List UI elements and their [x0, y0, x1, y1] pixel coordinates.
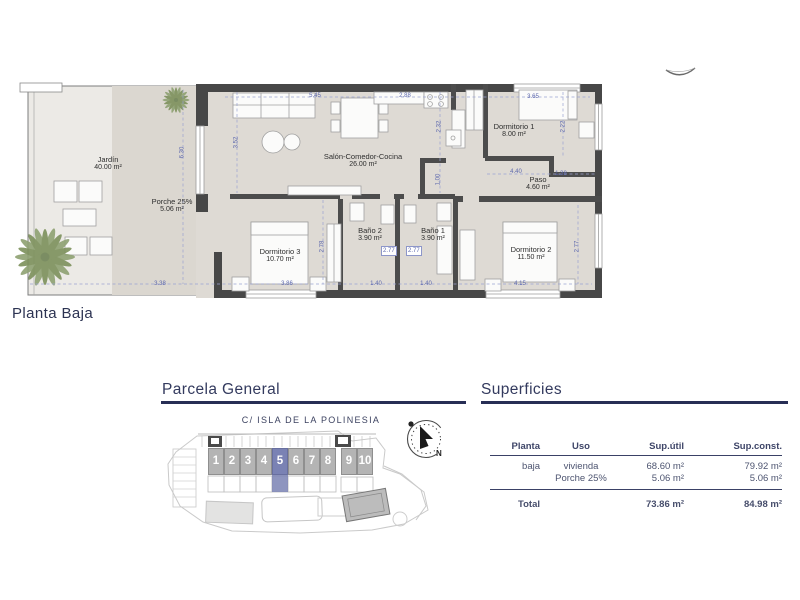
stove	[424, 92, 448, 108]
dimension-boxed: 2.77	[381, 246, 397, 256]
parcela-heading: Parcela General	[162, 381, 280, 399]
compass-icon: N	[408, 421, 445, 459]
table-total-row: Total 73.86 m² 84.98 m²	[490, 494, 782, 510]
dimension: 3.65	[518, 93, 548, 102]
dimension: 3.52	[233, 128, 242, 158]
nightstand	[485, 279, 501, 291]
bathroom-fixture	[404, 205, 416, 223]
room-label-salon: Salón-Comedor-Cocina26.00 m²	[298, 152, 428, 169]
dimension-boxed: 2.77	[406, 246, 422, 256]
north-label: N	[436, 449, 442, 458]
decorative-arc	[666, 68, 695, 75]
porche-area	[112, 86, 196, 295]
dimension: 3.86	[272, 280, 302, 289]
dimension: 1.00	[435, 165, 444, 195]
dimension: 2.77	[574, 232, 583, 262]
table-rule	[490, 489, 782, 490]
garden-chair	[54, 181, 77, 202]
fence-post	[20, 83, 62, 92]
dimension: 1.38	[546, 170, 576, 179]
dimension: 2.32	[436, 112, 445, 142]
cell-uso: Porche 25%	[540, 473, 622, 484]
plot-4: 4	[256, 448, 272, 475]
dimension: 5.45	[300, 92, 330, 101]
cell-util: 68.60 m²	[622, 461, 684, 472]
dimension: 2.78	[319, 232, 328, 262]
dining-table	[341, 98, 378, 138]
bathroom-fixture	[381, 205, 394, 224]
chair	[379, 120, 388, 132]
cell-util: 5.06 m²	[622, 473, 684, 484]
nightstand	[559, 279, 575, 291]
dimension: 1.40	[411, 280, 441, 289]
plot-5-patio	[272, 475, 288, 492]
table-rule	[490, 455, 782, 456]
cell-const: 5.06 m²	[684, 473, 782, 484]
plot-3: 3	[240, 448, 256, 475]
plot-2: 2	[224, 448, 240, 475]
sideboard	[288, 186, 361, 195]
street-label: C/ ISLA DE LA POLINESIA	[198, 415, 424, 425]
dimension: 4.40	[501, 168, 531, 177]
plot-7: 7	[304, 448, 320, 475]
coffee-table	[262, 131, 284, 153]
nightstand	[579, 122, 594, 138]
room-label-porche: Porche 25%5.06 m²	[107, 197, 237, 214]
room-label-jardin: Jardín40.00 m²	[43, 155, 173, 172]
superficies-heading: Superficies	[481, 381, 562, 399]
patio-row	[208, 476, 373, 492]
floor-label: Planta Baja	[12, 305, 93, 322]
dimension: 1.40	[361, 280, 391, 289]
bathroom-fixture	[350, 203, 364, 221]
dimension: 4.15	[505, 280, 535, 289]
room-label-bano-1: Baño 13.90 m²	[368, 226, 498, 243]
total-const: 84.98 m²	[684, 499, 782, 510]
parcela-underline	[161, 401, 466, 404]
plot-6: 6	[288, 448, 304, 475]
table-header-row: Planta Uso Sup.útil Sup.const.	[490, 437, 782, 452]
site-plan	[168, 431, 428, 533]
floor-plan-drawing: N	[0, 0, 800, 600]
plot-5-highlighted: 5	[272, 448, 288, 475]
room-label-paso: Paso4.60 m²	[473, 175, 603, 192]
col-sup-const: Sup.const.	[684, 441, 782, 452]
plot-9: 9	[341, 448, 357, 475]
bathroom-fixture	[437, 203, 451, 221]
garden-table	[63, 209, 96, 226]
cell-uso: vivienda	[540, 461, 622, 472]
col-uso: Uso	[540, 441, 622, 452]
total-label: Total	[490, 499, 540, 510]
table-row: baja vivienda 68.60 m² 79.92 m²	[490, 460, 782, 472]
dimension: 2.88	[390, 92, 420, 101]
total-util: 73.86 m²	[622, 499, 684, 510]
dimension: 2.22	[560, 112, 569, 142]
chair	[331, 120, 340, 132]
col-planta: Planta	[490, 441, 540, 452]
brochure-page: N Jardín40.00 m² Porche 25%5.06 m² Salón…	[0, 0, 800, 600]
table-row: Porche 25% 5.06 m² 5.06 m²	[490, 472, 782, 484]
community-building	[342, 488, 390, 521]
plot-1: 1	[208, 448, 224, 475]
compass-arrow	[420, 426, 433, 449]
superficies-underline	[481, 401, 788, 404]
plot-8: 8	[320, 448, 336, 475]
garden-chair	[79, 181, 102, 202]
plot-10: 10	[357, 448, 373, 475]
cell-planta: baja	[490, 461, 540, 472]
pool-outline	[262, 496, 323, 522]
col-sup-util: Sup.útil	[622, 441, 684, 452]
cell-const: 79.92 m²	[684, 461, 782, 472]
dimension: 3.38	[145, 280, 175, 289]
chair	[331, 102, 340, 114]
superficies-table: Planta Uso Sup.útil Sup.const. baja vivi…	[490, 437, 782, 510]
dimension: 6.30	[179, 138, 188, 168]
side-table	[284, 134, 300, 150]
garden-chair	[90, 237, 112, 255]
